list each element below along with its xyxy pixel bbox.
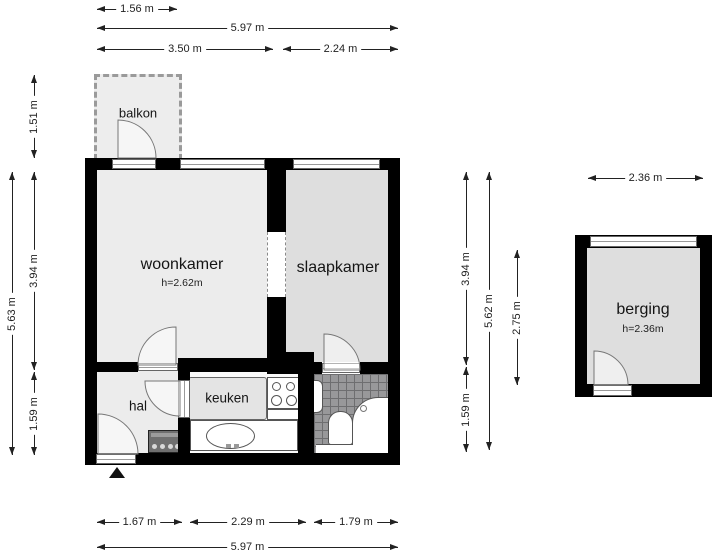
dimension-left-balkon: 1.51 m [27,75,41,158]
berging-window [590,236,697,247]
burner-icon [286,395,297,406]
dimension-bottom-2: 2.29 m [190,515,306,529]
entrance-door-opening [96,454,136,464]
dimension-top-2: 5.97 m [97,21,398,35]
balkon-door-opening [112,159,156,169]
keuken-label: keuken [205,391,249,406]
dimension-bottom-4: 5.97 m [97,540,398,554]
knob-icon [152,444,157,449]
wall [575,235,587,397]
berging-door-opening [593,385,632,396]
slaapkamer-window [293,159,380,169]
berging-label: berging [616,301,669,319]
wall [178,418,190,453]
wall [388,158,400,465]
dimension-left-total: 5.63 m [5,172,19,455]
wall [286,362,322,374]
dimension-berging-width: 2.36 m [588,171,703,185]
toilet [328,411,353,445]
woonkamer-window [180,159,265,169]
hal-label: hal [129,399,147,414]
bath-floor-strip [316,444,388,453]
wall [267,170,286,232]
burner-icon [272,382,281,391]
dimension-top-3: 3.50 m [97,42,273,56]
dimension-left-lower: 1.59 m [27,372,41,455]
dimension-right-berging: 2.75 m [510,250,524,385]
entrance-arrow-icon [109,467,125,478]
woonkamer-slaapkamer-passage [267,232,286,297]
dimension-left-upper: 3.94 m [27,172,41,370]
wall [97,362,138,372]
dimension-right-total: 5.62 m [482,172,496,450]
dimension-right-upper: 3.94 m [459,172,473,365]
dimension-top-4: 2.24 m [283,42,398,56]
hal-keuken-opening [178,380,190,418]
knob-icon [160,444,165,449]
burner-icon [286,382,295,391]
dimension-top-1: 1.56 m [97,2,177,16]
faucet-icon [234,444,239,448]
berging-height-label: h=2.36m [622,323,663,335]
wall [700,235,712,397]
faucet-icon [226,444,231,448]
hal-woonkamer-opening [138,363,178,371]
dimension-bottom-3: 1.79 m [314,515,398,529]
shower-drain-icon [360,405,367,412]
wall [360,362,388,374]
burner-icon [271,395,282,406]
woonkamer-height-label: h=2.62m [161,277,202,289]
woonkamer-label: woonkamer [141,256,224,274]
wall [178,358,267,372]
dimension-right-lower: 1.59 m [459,367,473,452]
knob-icon [168,444,173,449]
floor-plan: 1.56 m 5.97 m 3.50 m 2.24 m 1.67 m 2.29 … [0,0,720,554]
kitchen-counter-end [267,409,300,420]
balkon-label: balkon [119,106,157,121]
cabinet-detail [151,433,179,437]
slaapkamer-label: slaapkamer [297,259,380,277]
dimension-bottom-1: 1.67 m [97,515,182,529]
wall [85,158,97,465]
wall [298,374,314,453]
wall [178,362,190,380]
slaapkamer-badkamer-opening [322,363,360,373]
wall [267,297,286,357]
